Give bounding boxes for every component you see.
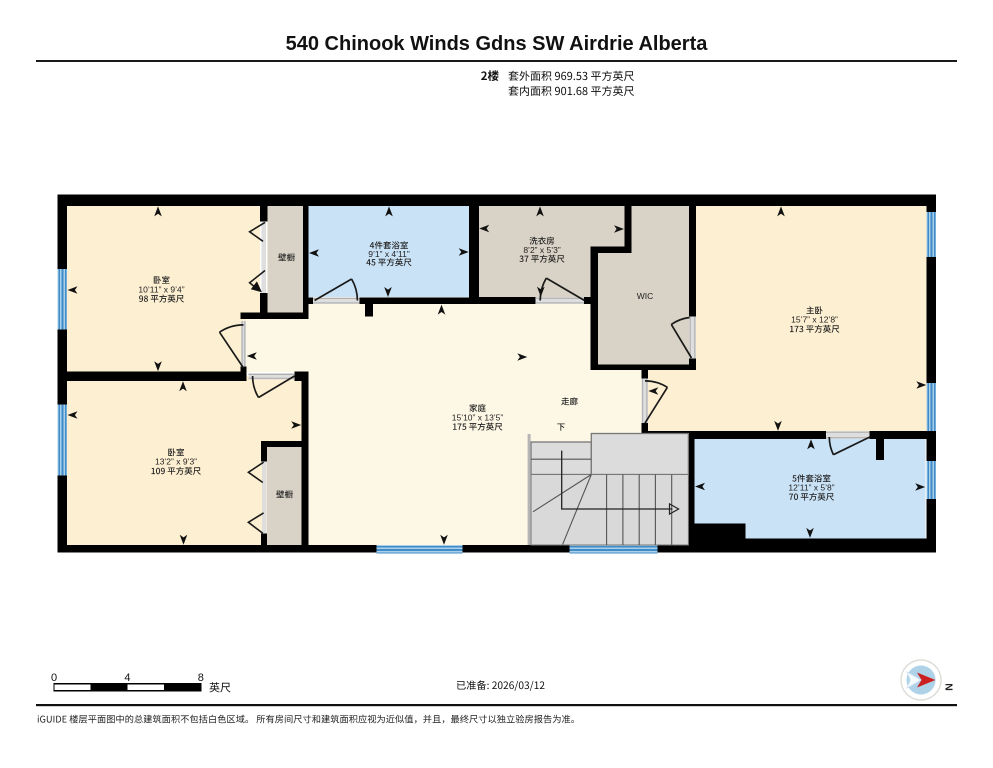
svg-text:15’7” x 12’8”: 15’7” x 12’8” <box>791 315 838 325</box>
svg-text:8: 8 <box>198 672 204 684</box>
svg-text:13’2” x 9’3”: 13’2” x 9’3” <box>155 457 197 467</box>
svg-text:8’2” x 5’3”: 8’2” x 5’3” <box>523 245 560 255</box>
svg-text:12’11” x 5’8”: 12’11” x 5’8” <box>788 483 834 493</box>
svg-text:10’11” x 9’4”: 10’11” x 9’4” <box>138 284 184 294</box>
svg-text:WIC: WIC <box>637 291 654 301</box>
svg-text:0: 0 <box>51 672 57 684</box>
svg-text:4: 4 <box>124 672 130 684</box>
svg-text:9’1” x 4’11”: 9’1” x 4’11” <box>368 249 410 259</box>
svg-text:15’10” x 13’5”: 15’10” x 13’5” <box>452 412 504 422</box>
svg-text:N: N <box>943 683 955 691</box>
